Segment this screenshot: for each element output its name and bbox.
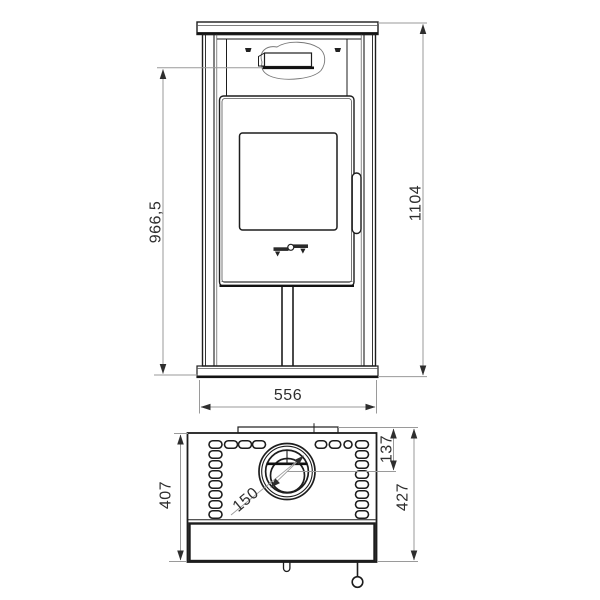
vent-hole (209, 481, 222, 489)
vent-hole (209, 471, 222, 479)
vent-hole (253, 441, 266, 449)
vent-hole (356, 501, 369, 509)
door-window (240, 133, 338, 230)
damper-lever (265, 53, 312, 67)
door-hinge-peg (284, 562, 290, 572)
dim-label-flue-diameter: 150 (230, 484, 263, 515)
vent-hole (356, 481, 369, 489)
fire-door-inner-bevel (222, 99, 352, 283)
vent-hole (315, 441, 327, 449)
dim-label-total-height: 1104 (408, 185, 425, 221)
door-handle (352, 173, 361, 234)
vent-hole (209, 461, 222, 469)
vent-hole (209, 511, 222, 519)
damper-cutout-outline (261, 42, 325, 79)
vent-hole (209, 441, 222, 449)
screw-right-icon (335, 48, 342, 52)
technical-drawing-page: 966,5 1104 556 (0, 0, 600, 600)
vent-hole (225, 441, 238, 449)
stove-body-outline (203, 35, 376, 367)
screw-left-icon (245, 48, 252, 52)
front-view (197, 22, 378, 378)
dim-label-body-depth: 407 (158, 481, 175, 509)
vent-hole (356, 451, 369, 459)
air-control-icon (274, 244, 309, 256)
vent-hole (329, 441, 341, 449)
handle-knob (352, 577, 363, 588)
vent-hole (356, 511, 369, 519)
dim-label-width: 556 (274, 387, 302, 404)
vent-hole (209, 451, 222, 459)
vent-hole (356, 491, 369, 499)
top-view (188, 423, 377, 587)
vent-hole (356, 441, 369, 449)
front-band (190, 524, 375, 562)
front-view-dimensions: 966,5 1104 556 (148, 23, 428, 414)
vent-hole (209, 501, 222, 509)
stove-technical-drawing: 966,5 1104 556 (0, 0, 600, 600)
vent-hole (239, 441, 252, 449)
vent-hole (356, 461, 369, 469)
vent-hole (209, 491, 222, 499)
dim-label-total-depth: 427 (395, 483, 412, 511)
top-view-dimensions: 407 427 137 150 (158, 428, 419, 562)
vent-hole (344, 441, 352, 449)
dim-label-flue-offset: 137 (379, 435, 396, 463)
dim-label-lever-height: 966,5 (148, 201, 165, 244)
